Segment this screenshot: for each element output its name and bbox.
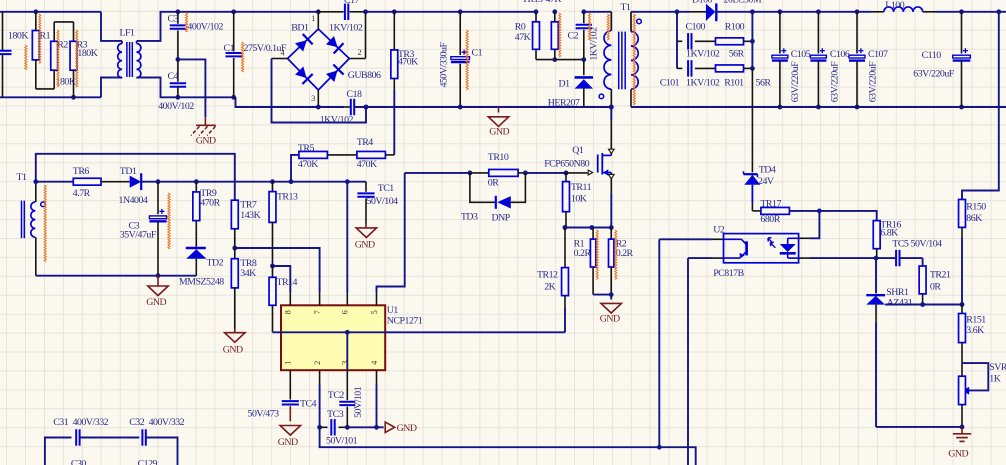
- svg-text:TD3: TD3: [461, 211, 478, 222]
- svg-text:C17: C17: [344, 0, 360, 6]
- svg-text:Q1: Q1: [572, 145, 584, 156]
- svg-text:U2: U2: [713, 225, 725, 236]
- svg-text:63V/220uF: 63V/220uF: [868, 61, 879, 103]
- svg-text:C2: C2: [568, 31, 579, 42]
- svg-text:GND: GND: [355, 239, 375, 250]
- svg-text:L100: L100: [885, 0, 904, 11]
- svg-text:180K: 180K: [8, 30, 29, 41]
- svg-text:0.2R: 0.2R: [616, 248, 634, 259]
- svg-text:0R: 0R: [930, 281, 941, 292]
- svg-text:R0: R0: [515, 21, 526, 32]
- svg-text:470R: 470R: [200, 197, 220, 208]
- svg-text:C1: C1: [472, 48, 483, 59]
- svg-text:TC3: TC3: [327, 409, 344, 420]
- svg-text:3: 3: [311, 94, 315, 103]
- svg-text:47K: 47K: [515, 32, 532, 43]
- svg-text:56R: 56R: [729, 49, 745, 60]
- svg-text:TR14: TR14: [277, 277, 298, 288]
- svg-text:GND: GND: [223, 344, 243, 355]
- svg-text:1: 1: [284, 361, 293, 365]
- svg-text:R151: R151: [966, 314, 986, 325]
- svg-text:47K: 47K: [546, 0, 563, 5]
- svg-text:5: 5: [370, 310, 379, 314]
- svg-text:D100: D100: [692, 0, 713, 5]
- svg-text:GND: GND: [397, 423, 417, 434]
- svg-text:6.8K: 6.8K: [880, 227, 899, 238]
- svg-text:0R: 0R: [488, 177, 499, 188]
- svg-text:6: 6: [341, 310, 350, 314]
- svg-text:C110: C110: [922, 50, 942, 61]
- svg-text:7: 7: [313, 310, 322, 314]
- svg-text:TR11: TR11: [571, 182, 592, 193]
- svg-text:FCP650N80: FCP650N80: [544, 158, 589, 169]
- svg-text:56R: 56R: [756, 78, 772, 89]
- svg-text:TR15: TR15: [522, 0, 543, 5]
- svg-text:50V/101: 50V/101: [353, 386, 364, 418]
- svg-text:63V/220uF: 63V/220uF: [829, 61, 840, 103]
- svg-text:GND: GND: [948, 448, 968, 459]
- svg-text:GND: GND: [600, 313, 620, 324]
- svg-text:TC1: TC1: [378, 183, 395, 194]
- svg-text:C105: C105: [791, 49, 811, 60]
- svg-text:0.2R: 0.2R: [574, 248, 592, 259]
- svg-text:DNP: DNP: [492, 212, 511, 223]
- svg-text:C101: C101: [660, 78, 680, 89]
- svg-text:C1: C1: [224, 43, 235, 54]
- svg-text:TD2: TD2: [207, 257, 224, 268]
- svg-text:1K: 1K: [989, 373, 1001, 384]
- svg-text:50V/104: 50V/104: [367, 196, 399, 207]
- svg-text:TR6: TR6: [73, 166, 90, 177]
- svg-text:50V/101: 50V/101: [326, 436, 358, 447]
- svg-text:GND: GND: [489, 127, 509, 138]
- svg-text:TR10: TR10: [488, 152, 509, 163]
- svg-text:50V/473: 50V/473: [248, 408, 280, 419]
- svg-text:C31: C31: [53, 417, 69, 428]
- svg-text:TR13: TR13: [277, 191, 298, 202]
- svg-text:TC2: TC2: [328, 390, 345, 401]
- svg-text:63V/220uF: 63V/220uF: [913, 69, 955, 80]
- svg-text:10K: 10K: [571, 193, 588, 204]
- svg-text:3.6K: 3.6K: [966, 325, 985, 336]
- svg-text:GUB806: GUB806: [348, 70, 381, 81]
- svg-text:TR21: TR21: [930, 269, 951, 280]
- svg-text:C32: C32: [129, 417, 145, 428]
- svg-text:1KV/102: 1KV/102: [686, 78, 720, 89]
- svg-text:50V/104: 50V/104: [911, 239, 943, 250]
- svg-text:400V/102: 400V/102: [187, 22, 223, 33]
- svg-text:C100: C100: [686, 21, 706, 32]
- svg-text:TC5: TC5: [892, 239, 909, 250]
- svg-text:TR17: TR17: [760, 198, 781, 209]
- svg-text:4.7R: 4.7R: [73, 188, 91, 199]
- svg-text:2: 2: [358, 48, 362, 57]
- svg-text:C106: C106: [830, 49, 850, 60]
- svg-text:3: 3: [341, 361, 350, 365]
- svg-text:TR5: TR5: [298, 143, 315, 154]
- svg-text:470K: 470K: [298, 159, 319, 170]
- svg-text:PC817B: PC817B: [713, 268, 744, 279]
- svg-text:1KV/102: 1KV/102: [329, 22, 363, 33]
- svg-text:680R: 680R: [760, 214, 780, 225]
- svg-text:MMSZ5248: MMSZ5248: [179, 276, 224, 287]
- svg-text:143K: 143K: [240, 210, 261, 221]
- svg-text:TR12: TR12: [537, 270, 558, 281]
- svg-text:180K: 180K: [77, 48, 98, 59]
- svg-text:LF1: LF1: [120, 27, 136, 38]
- svg-text:1: 1: [311, 14, 315, 23]
- svg-text:TC4: TC4: [300, 398, 317, 409]
- svg-text:R100: R100: [725, 21, 745, 32]
- svg-text:2K: 2K: [544, 282, 556, 293]
- svg-text:400V/102: 400V/102: [158, 101, 194, 112]
- svg-text:SVR1: SVR1: [989, 362, 1006, 373]
- svg-text:470K: 470K: [398, 57, 418, 68]
- svg-text:BD1: BD1: [291, 22, 309, 33]
- svg-text:R101: R101: [724, 78, 744, 89]
- svg-text:TR4: TR4: [357, 137, 374, 148]
- svg-text:TD4: TD4: [759, 164, 776, 175]
- svg-text:C30: C30: [71, 459, 87, 465]
- svg-text:AZ431: AZ431: [887, 298, 913, 309]
- svg-text:86K: 86K: [966, 213, 983, 224]
- svg-text:NCP1271: NCP1271: [387, 316, 423, 327]
- svg-text:C3: C3: [168, 13, 179, 24]
- svg-text:63V/220uF: 63V/220uF: [790, 61, 801, 103]
- svg-text:400V/332: 400V/332: [149, 417, 185, 428]
- svg-text:TD1: TD1: [120, 166, 137, 177]
- svg-text:HER207: HER207: [548, 97, 580, 108]
- svg-text:8: 8: [284, 310, 293, 314]
- svg-text:1N4004: 1N4004: [119, 195, 148, 206]
- svg-text:450V/330uF: 450V/330uF: [439, 42, 450, 88]
- svg-text:R150: R150: [966, 202, 986, 213]
- svg-text:C18: C18: [347, 89, 363, 100]
- svg-text:34K: 34K: [240, 268, 257, 279]
- svg-text:20LC50M: 20LC50M: [724, 0, 762, 5]
- svg-text:D1: D1: [559, 78, 571, 89]
- svg-text:35V/47uF: 35V/47uF: [120, 230, 157, 241]
- svg-text:1KV/102: 1KV/102: [320, 114, 354, 125]
- svg-text:T1: T1: [17, 172, 28, 183]
- svg-text:GND: GND: [196, 135, 216, 146]
- svg-text:2: 2: [313, 361, 322, 365]
- svg-text:GND: GND: [278, 437, 298, 448]
- svg-text:470K: 470K: [357, 159, 378, 170]
- svg-text:T1: T1: [621, 2, 632, 13]
- svg-text:24V: 24V: [758, 176, 775, 187]
- svg-text:C107: C107: [868, 49, 888, 60]
- svg-text:SHR1: SHR1: [886, 287, 909, 298]
- svg-text:C129: C129: [138, 459, 158, 465]
- svg-text:1KV/102: 1KV/102: [686, 49, 720, 60]
- svg-text:C4: C4: [168, 71, 179, 82]
- svg-text:400V/332: 400V/332: [73, 417, 109, 428]
- svg-text:GND: GND: [146, 297, 166, 308]
